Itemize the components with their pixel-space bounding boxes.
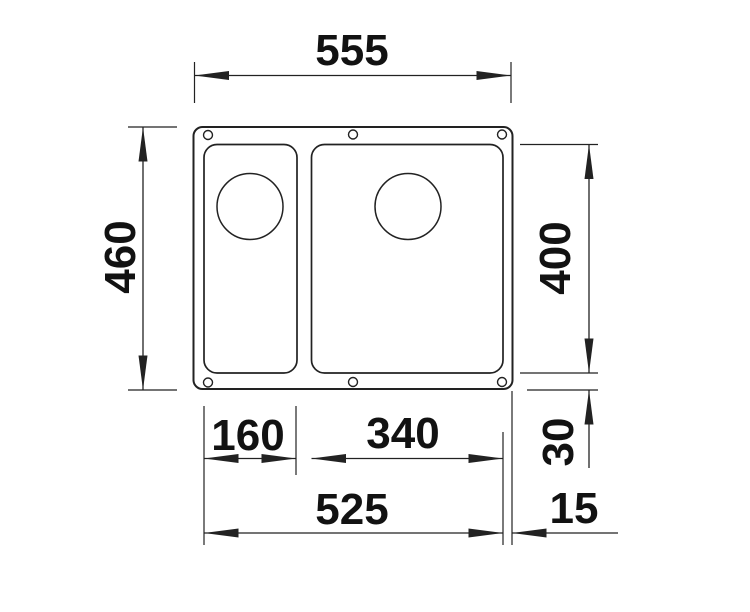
dim-525-arrow-right [469, 529, 504, 538]
dim-400-arrow-bottom [585, 339, 594, 374]
small-bowl [204, 145, 297, 374]
dim-340-label: 340 [366, 409, 439, 458]
mounting-hole-top-center [349, 130, 358, 139]
mounting-hole-bottom-right [498, 378, 507, 387]
dim-400-arrow-top [585, 145, 594, 180]
small-bowl-drain-hole [217, 174, 283, 240]
mounting-hole-top-left [204, 131, 213, 140]
dim-bottom-offset: 30 [527, 390, 598, 468]
dim-555-label: 555 [315, 26, 388, 75]
dim-555-arrow-right [477, 71, 512, 80]
sink-dimension-diagram: 555 460 400 30 [0, 0, 750, 612]
dim-large-bowl-width: 340 [312, 409, 504, 463]
dim-460-arrow-bottom [139, 356, 148, 391]
dim-30-arrow-up [585, 390, 594, 425]
dim-340-arrow-right [469, 454, 504, 463]
mounting-hole-bottom-left [204, 378, 213, 387]
dim-small-bowl-width: 160 [204, 406, 296, 545]
sink-body [194, 127, 513, 389]
dim-160-label: 160 [211, 411, 284, 460]
large-bowl [312, 145, 504, 374]
dim-overall-depth: 460 [96, 127, 177, 390]
dim-460-arrow-top [139, 127, 148, 162]
sink-outline [194, 127, 513, 389]
dim-340-arrow-left [312, 454, 347, 463]
dim-30-label: 30 [534, 418, 583, 467]
dim-bowl-depth: 400 [520, 145, 598, 374]
mounting-hole-bottom-center [349, 378, 358, 387]
dim-400-label: 400 [531, 221, 580, 294]
mounting-hole-top-right [498, 130, 507, 139]
dim-overall-width: 555 [195, 26, 512, 103]
dim-460-label: 460 [96, 220, 145, 293]
dim-555-arrow-left [195, 71, 230, 80]
diagram-svg: 555 460 400 30 [0, 0, 750, 612]
dim-525-arrow-left [204, 529, 239, 538]
dim-525-label: 525 [315, 485, 388, 534]
dim-15-arrow-left [512, 529, 547, 538]
dim-right-offset: 15 [512, 391, 618, 545]
large-bowl-drain-hole [375, 174, 441, 240]
dim-15-label: 15 [550, 484, 599, 533]
